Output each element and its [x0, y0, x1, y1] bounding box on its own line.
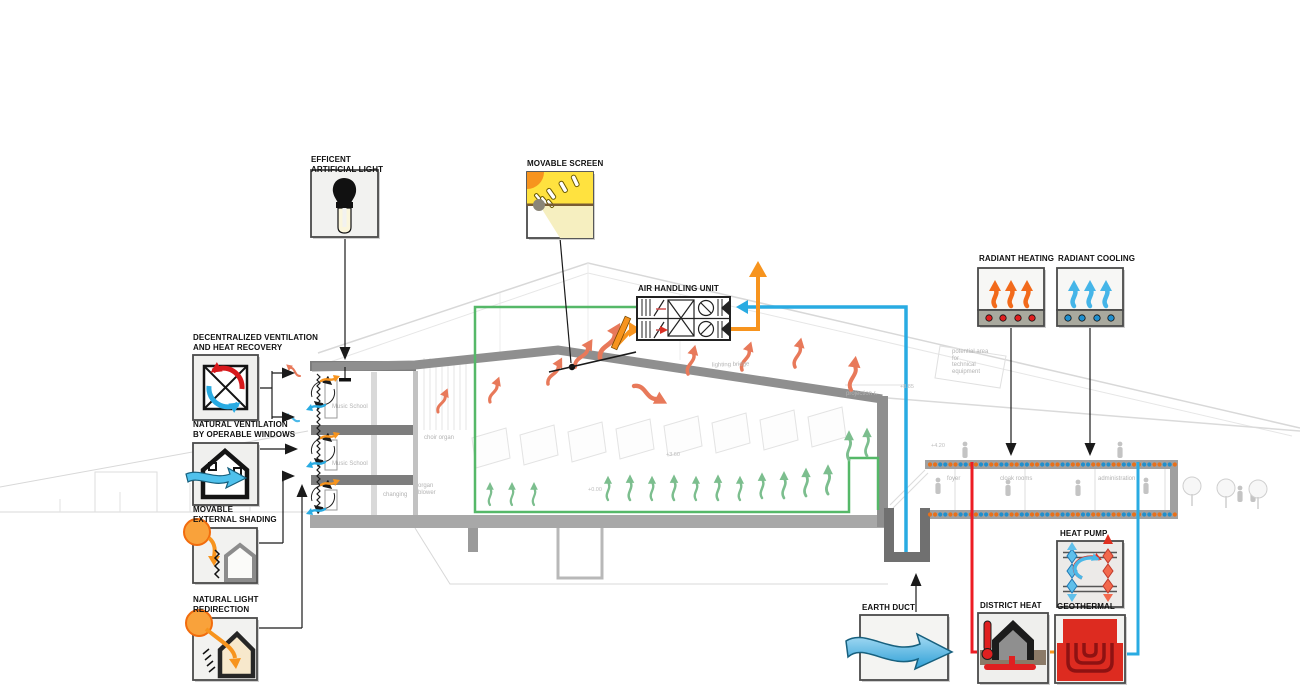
radiant-dot: [1152, 462, 1156, 466]
radiant-dot: [933, 462, 937, 466]
radiant-dot: [933, 512, 937, 516]
radiant-dot: [1071, 462, 1075, 466]
warm-air-arrows: [281, 319, 862, 424]
radiant-dot: [1010, 512, 1014, 516]
facade-ventilation-circles: [306, 375, 340, 515]
radiant-dot: [1106, 462, 1110, 466]
annotation-foyer: foyer: [947, 476, 960, 483]
person-figure: [962, 442, 967, 458]
label-radiant-heating: RADIANT HEATING: [979, 254, 1054, 264]
radiant-dot: [984, 462, 988, 466]
radiant-dot: [1045, 512, 1049, 516]
label-earth-duct: EARTH DUCT: [862, 603, 915, 613]
level-mark-3: +3.60: [666, 452, 680, 458]
radiant-dot: [1020, 512, 1024, 516]
radiant-dot: [1117, 462, 1121, 466]
ceiling-panel: [616, 419, 654, 459]
radiant-dot: [1157, 462, 1161, 466]
annotation-cloak-rooms: cloak rooms: [1000, 476, 1032, 483]
label-air-handling-unit: AIR HANDLING UNIT: [638, 284, 719, 294]
air-handling-unit-icon: [637, 297, 730, 340]
heat-pump-icon: [1057, 534, 1125, 609]
floor-supply-arrow: [736, 476, 744, 500]
radiant-dot: [999, 512, 1003, 516]
label-radiant-cooling: RADIANT COOLING: [1058, 254, 1135, 264]
radiant-dot: [1030, 462, 1034, 466]
radiant-dot: [1106, 512, 1110, 516]
radiant-dot: [959, 512, 963, 516]
radiant-dot: [1147, 462, 1151, 466]
radiant-dot: [1030, 512, 1034, 516]
radiant-dot: [948, 512, 952, 516]
floor-supply-arrow: [648, 476, 656, 500]
radiant-dot: [943, 462, 947, 466]
radiant-dot: [999, 462, 1003, 466]
warm-air-arrow: [790, 337, 807, 369]
label-decentralized-ventilation: DECENTRALIZED VENTILATION AND HEAT RECOV…: [193, 333, 318, 352]
radiant-dot: [974, 462, 978, 466]
radiant-dot: [1066, 512, 1070, 516]
radiant-dot: [1004, 462, 1008, 466]
radiant-dot: [1015, 462, 1019, 466]
floor-supply-arrow: [626, 474, 635, 500]
warm-air-arrow: [631, 380, 671, 410]
radiant-dot: [1050, 512, 1054, 516]
floor-supply-arrow: [780, 471, 789, 498]
radiant-dot: [1081, 512, 1085, 516]
radiant-dot: [1055, 512, 1059, 516]
radiant-dot: [1025, 462, 1029, 466]
person-figure: [1143, 478, 1148, 494]
radiant-dot: [1020, 462, 1024, 466]
radiant-dot: [1117, 512, 1121, 516]
label-movable-external-shading: MOVABLE EXTERNAL SHADING: [193, 505, 277, 524]
radiant-dot: [1076, 462, 1080, 466]
warm-air-arrow: [284, 362, 302, 379]
radiant-dot: [1096, 512, 1100, 516]
radiant-dot: [1142, 512, 1146, 516]
annotation-choir-organ: choir organ: [424, 435, 454, 442]
tree-figure: [1183, 477, 1201, 506]
radiant-dot: [1122, 512, 1126, 516]
radiant-dot: [1168, 462, 1172, 466]
district-heat-line: [972, 462, 977, 652]
radiant-dot: [1163, 462, 1167, 466]
tree-figure: [1217, 479, 1235, 508]
floor-supply-arrow: [692, 476, 700, 500]
exhaust-arrowhead: [749, 261, 767, 277]
annotation-lighting-bridge: lighting bridge: [712, 361, 750, 369]
radiant-dot: [989, 462, 993, 466]
label-efficient-artificial-light: EFFICENT ARTIFICIAL LIGHT: [311, 155, 383, 174]
radiant-dot: [1096, 462, 1100, 466]
ceiling-panel: [520, 425, 558, 465]
radiant-dot: [979, 512, 983, 516]
radiant-dot: [1015, 512, 1019, 516]
radiant-dot: [1091, 462, 1095, 466]
radiant-dot: [1127, 462, 1131, 466]
ceiling-panel: [712, 413, 750, 453]
radiant-dot: [959, 462, 963, 466]
radiant-dot: [994, 512, 998, 516]
radiant-dot: [1045, 462, 1049, 466]
fresh-air-arrowhead: [736, 300, 748, 314]
floor-supply-arrow: [508, 482, 516, 505]
ceiling-panel: [664, 416, 702, 456]
radiant-dot: [948, 462, 952, 466]
radiant-dot: [1076, 512, 1080, 516]
floor-supply-arrow: [862, 428, 871, 456]
radiant-dot: [1035, 462, 1039, 466]
radiant-dot: [1071, 512, 1075, 516]
radiant-dot: [1035, 512, 1039, 516]
geothermal-cooling-line: [1127, 462, 1138, 654]
radiant-dot: [1132, 462, 1136, 466]
floor-supply-arrow: [801, 468, 810, 496]
radiant-dot: [1061, 462, 1065, 466]
decentralized-ventilation-icon: [193, 355, 260, 422]
floor-supply-arrow: [823, 464, 833, 494]
floor-supply-arrow: [758, 472, 767, 498]
floor-supply-arrow: [714, 474, 723, 500]
earth-duct-icon: [846, 615, 952, 682]
radiant-dot: [1040, 512, 1044, 516]
radiant-dot: [1122, 462, 1126, 466]
district-heat-icon: [978, 613, 1050, 685]
ceiling-panel: [808, 407, 846, 447]
radiant-dot: [979, 462, 983, 466]
annotation-music-school-2: Music School: [332, 461, 368, 468]
radiant-dot: [989, 512, 993, 516]
level-mark-2: +4.20: [931, 443, 945, 449]
radiant-dot: [994, 462, 998, 466]
efficient-artificial-light-icon: [311, 170, 380, 239]
radiant-dot: [974, 512, 978, 516]
radiant-dot: [1152, 512, 1156, 516]
radiant-dot: [1050, 462, 1054, 466]
radiant-dot: [1081, 462, 1085, 466]
floor-supply-arrow: [670, 474, 679, 500]
annotation-organ-blower: organ blower: [418, 483, 436, 496]
label-movable-screen: MOVABLE SCREEN: [527, 159, 603, 169]
radiant-dot: [928, 462, 932, 466]
geothermal-icon: [1055, 615, 1127, 685]
radiant-dot: [1010, 462, 1014, 466]
person-figure: [1117, 442, 1122, 458]
radiant-dot: [1066, 462, 1070, 466]
annotation-potential-area: potential area for technical equipment: [952, 349, 988, 375]
label-geothermal: GEOTHERMAL: [1057, 602, 1115, 612]
radiant-cooling-icon: [1057, 268, 1125, 328]
radiant-dot: [928, 512, 932, 516]
radiant-dot: [1157, 512, 1161, 516]
radiant-dot: [1127, 512, 1131, 516]
building-section: [310, 350, 1178, 562]
radiant-dot: [1147, 512, 1151, 516]
person-figure: [1075, 480, 1080, 496]
radiant-dot: [1055, 462, 1059, 466]
label-natural-light-redirection: NATURAL LIGHT REDIRECTION: [193, 595, 258, 614]
radiant-dot: [1173, 462, 1177, 466]
radiant-dot: [1173, 512, 1177, 516]
ceiling-panel: [472, 428, 510, 468]
radiant-dot: [1091, 512, 1095, 516]
person-figure: [1237, 486, 1242, 502]
annotation-projection-room: projection r.: [846, 391, 877, 398]
natural-light-redirection-icon: [186, 610, 259, 682]
label-district-heat: DISTRICT HEAT: [980, 601, 1042, 611]
radiant-dot: [953, 512, 957, 516]
movable-screen-icon: [527, 172, 595, 240]
annotation-administration: administration: [1098, 476, 1135, 483]
annotation-music-school-1: Music School: [332, 404, 368, 411]
label-natural-ventilation: NATURAL VENTILATION BY OPERABLE WINDOWS: [193, 420, 295, 439]
warm-air-arrow: [485, 375, 504, 404]
radiant-dot: [964, 462, 968, 466]
radiant-heating-icon: [978, 268, 1046, 328]
floor-supply-arrow: [530, 482, 538, 505]
annotation-changing: changing: [383, 492, 407, 499]
radiant-dot: [1132, 512, 1136, 516]
radiant-dot: [1112, 462, 1116, 466]
natural-ventilation-icon: [186, 443, 260, 507]
radiant-dot: [938, 512, 942, 516]
radiant-dot: [984, 512, 988, 516]
tree-figure: [1249, 480, 1267, 509]
radiant-dot: [953, 462, 957, 466]
radiant-floor-dots: [928, 462, 1177, 516]
radiant-dot: [1086, 512, 1090, 516]
radiant-dot: [938, 462, 942, 466]
ceiling-panel: [568, 422, 606, 462]
operable-facade-zigzag: [317, 374, 320, 512]
energy-concept-diagram: DECENTRALIZED VENTILATION AND HEAT RECOV…: [0, 0, 1300, 697]
radiant-dot: [1142, 462, 1146, 466]
radiant-dot: [1040, 462, 1044, 466]
radiant-dot: [1004, 512, 1008, 516]
level-mark-1: +8.85: [900, 384, 914, 390]
person-figure: [935, 478, 940, 494]
ceiling-panel: [760, 410, 798, 450]
floor-supply-arrow: [604, 476, 612, 500]
radiant-dot: [1101, 462, 1105, 466]
label-heat-pump: HEAT PUMP: [1060, 529, 1107, 539]
movable-external-shading-icon: [184, 519, 259, 585]
floor-supply-arrow: [486, 482, 494, 505]
radiant-dot: [1061, 512, 1065, 516]
radiant-dot: [943, 512, 947, 516]
radiant-dot: [1112, 512, 1116, 516]
radiant-dot: [1025, 512, 1029, 516]
radiant-dot: [1168, 512, 1172, 516]
level-mark-4: +0.00: [588, 487, 602, 493]
radiant-dot: [964, 512, 968, 516]
radiant-dot: [1163, 512, 1167, 516]
radiant-dot: [1086, 462, 1090, 466]
radiant-dot: [1101, 512, 1105, 516]
